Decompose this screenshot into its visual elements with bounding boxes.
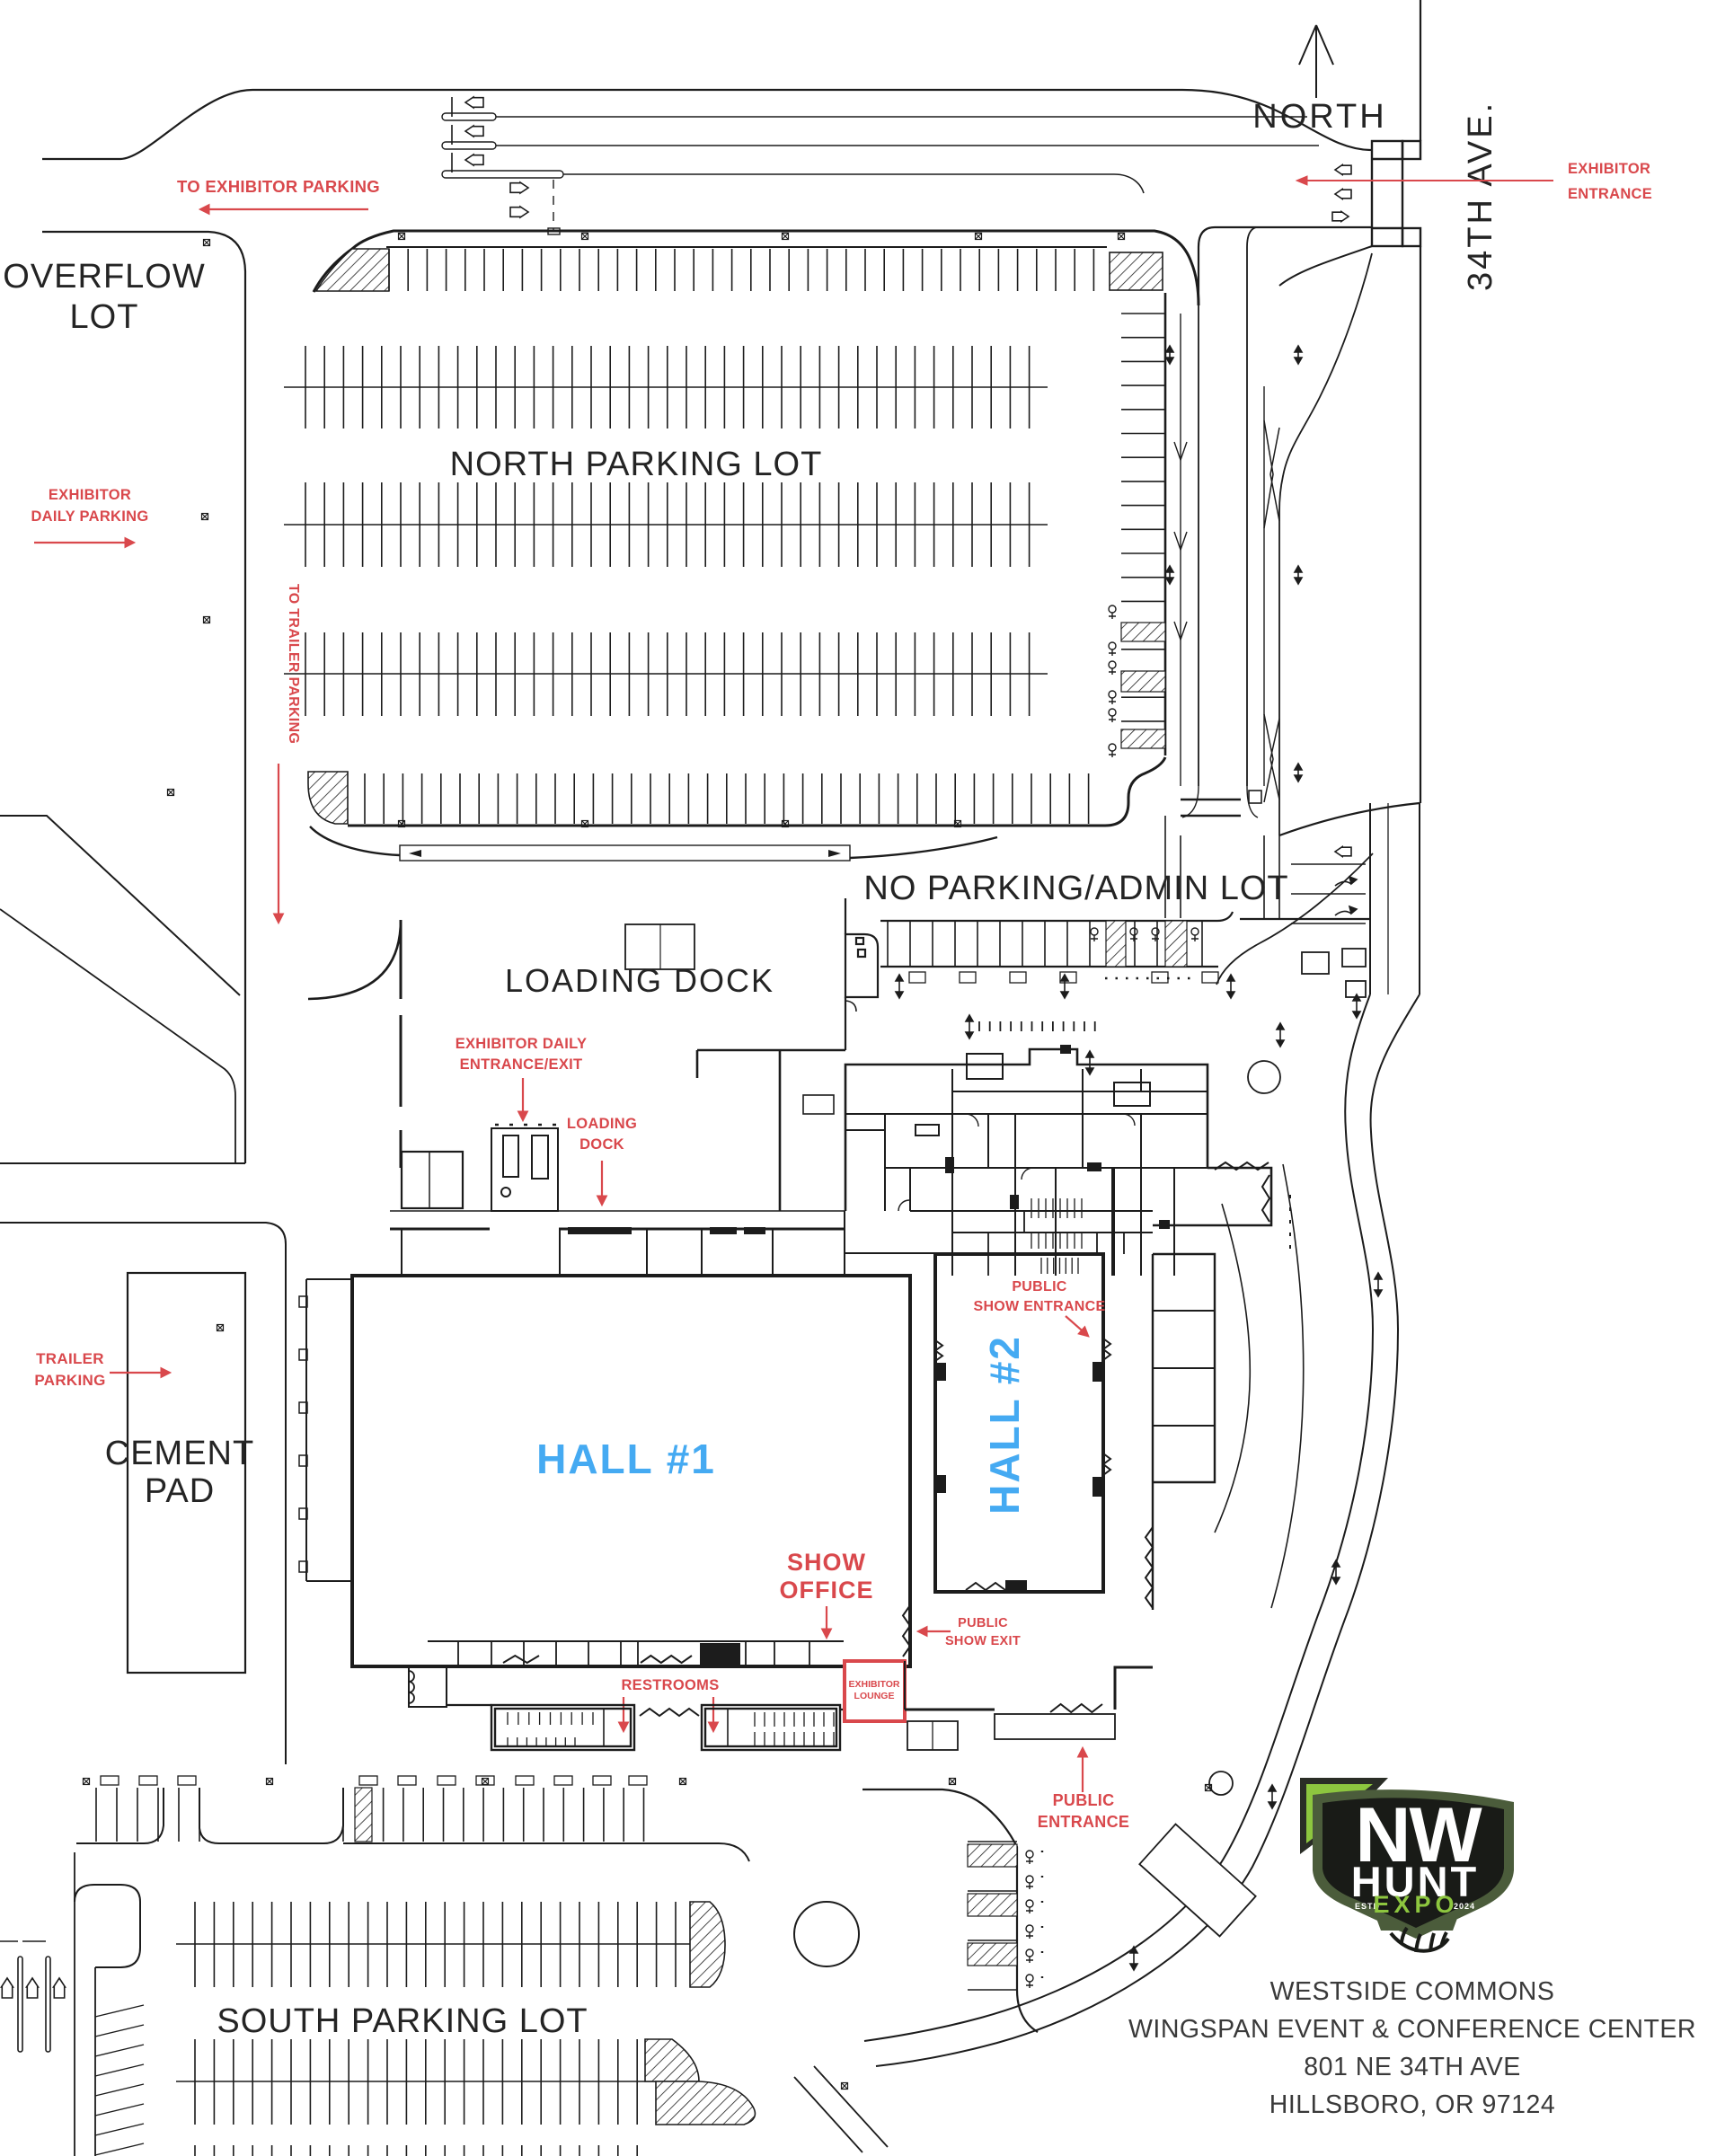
- svg-text:NORTH PARKING LOT: NORTH PARKING LOT: [450, 446, 823, 483]
- svg-text:TO EXHIBITOR PARKING: TO EXHIBITOR PARKING: [177, 177, 380, 196]
- svg-text:EXHIBITOR: EXHIBITOR: [849, 1679, 900, 1690]
- svg-text:WESTSIDE COMMONS: WESTSIDE COMMONS: [1270, 1977, 1555, 2006]
- svg-text:NORTH: NORTH: [1252, 98, 1386, 136]
- svg-text:DOCK: DOCK: [579, 1136, 624, 1153]
- svg-text:CEMENT: CEMENT: [105, 1435, 254, 1472]
- svg-text:34TH AVE.: 34TH AVE.: [1462, 101, 1499, 291]
- svg-text:ENTRANCE: ENTRANCE: [1038, 1813, 1129, 1831]
- svg-text:PUBLIC: PUBLIC: [1012, 1279, 1067, 1294]
- svg-text:TRAILER: TRAILER: [36, 1350, 104, 1367]
- svg-text:LOUNGE: LOUNGE: [854, 1691, 895, 1701]
- svg-text:HALL #2: HALL #2: [981, 1335, 1028, 1515]
- svg-text:SOUTH PARKING LOT: SOUTH PARKING LOT: [217, 2002, 588, 2040]
- svg-text:801 NE 34TH AVE: 801 NE 34TH AVE: [1304, 2053, 1520, 2081]
- svg-text:WINGSPAN EVENT & CONFERENCE CE: WINGSPAN EVENT & CONFERENCE CENTER: [1128, 2015, 1696, 2044]
- svg-text:EXHIBITOR DAILY: EXHIBITOR DAILY: [456, 1036, 588, 1052]
- svg-text:PAD: PAD: [145, 1472, 215, 1510]
- svg-text:TO TRAILER PARKING: TO TRAILER PARKING: [286, 584, 301, 744]
- svg-text:LOADING: LOADING: [567, 1116, 637, 1132]
- svg-text:HALL #1: HALL #1: [536, 1436, 716, 1482]
- svg-text:HILLSBORO, OR 97124: HILLSBORO, OR 97124: [1269, 2090, 1555, 2119]
- svg-text:RESTROOMS: RESTROOMS: [621, 1677, 719, 1693]
- svg-text:OVERFLOW: OVERFLOW: [3, 258, 205, 296]
- svg-text:SHOW: SHOW: [787, 1549, 866, 1576]
- svg-text:OFFICE: OFFICE: [780, 1577, 874, 1604]
- svg-text:ENTRANCE/EXIT: ENTRANCE/EXIT: [460, 1056, 583, 1073]
- svg-text:ENTRANCE: ENTRANCE: [1568, 186, 1652, 202]
- svg-text:LOADING DOCK: LOADING DOCK: [505, 962, 774, 999]
- svg-text:EXHIBITOR: EXHIBITOR: [1568, 161, 1650, 177]
- svg-text:NO PARKING/ADMIN LOT: NO PARKING/ADMIN LOT: [863, 870, 1288, 907]
- svg-text:DAILY PARKING: DAILY PARKING: [31, 508, 148, 525]
- svg-text:EXHIBITOR: EXHIBITOR: [49, 487, 131, 503]
- svg-text:PARKING: PARKING: [34, 1372, 105, 1389]
- svg-text:LOT: LOT: [70, 298, 139, 336]
- svg-text:SHOW ENTRANCE: SHOW ENTRANCE: [973, 1299, 1105, 1314]
- svg-text:SHOW EXIT: SHOW EXIT: [945, 1634, 1021, 1648]
- svg-text:EXPO: EXPO: [1373, 1891, 1458, 1918]
- svg-text:PUBLIC: PUBLIC: [1053, 1791, 1115, 1809]
- svg-text:PUBLIC: PUBLIC: [958, 1616, 1008, 1630]
